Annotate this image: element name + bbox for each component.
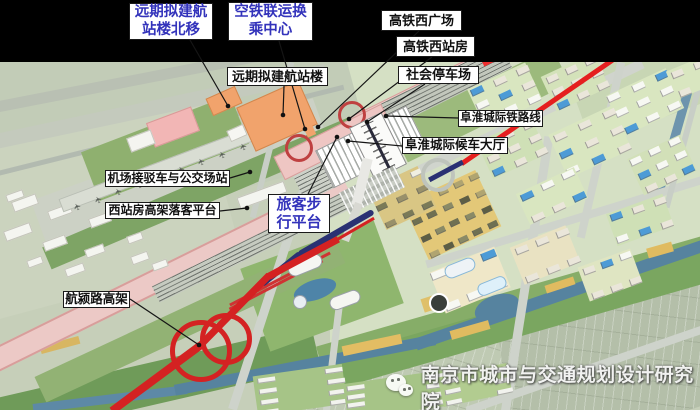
annotation-hangying-road-viaduct: 航颍路高架 bbox=[63, 291, 130, 308]
annotation-passenger-walking-platform: 旅客步行平台 bbox=[268, 194, 330, 233]
annotation-fuhuai-intercity-rail-line: 阜淮城际铁路线 bbox=[458, 110, 543, 127]
watermark: 南京市城市与交通规划设计研究院 bbox=[386, 360, 700, 410]
annotation-hsr-west-station-building: 高铁西站房 bbox=[396, 36, 475, 57]
annotation-terminal-north-shift: 远期拟建航站楼北移 bbox=[129, 3, 213, 40]
annotation-fuhuai-intercity-waiting-hall: 阜淮城际候车大厅 bbox=[402, 137, 508, 154]
aerial-rendering: ✈✈✈✈✈✈✈✈✈✈✈✈ bbox=[0, 62, 700, 410]
watermark-text: 南京市城市与交通规划设计研究院 bbox=[421, 360, 700, 410]
wechat-icon bbox=[386, 373, 415, 401]
annotation-air-rail-transfer-center: 空铁联运换乘中心 bbox=[228, 2, 313, 41]
annotation-west-building-elevated-dropoff: 西站房高架落客平台 bbox=[105, 202, 220, 219]
annotation-public-parking: 社会停车场 bbox=[398, 66, 479, 84]
annotation-airport-shuttle-bus-terminal: 机场接驳车与公交场站 bbox=[105, 170, 230, 187]
annotation-future-terminal: 远期拟建航站楼 bbox=[227, 67, 328, 86]
annotation-hsr-west-plaza: 高铁西广场 bbox=[381, 10, 462, 31]
planning-rendering-screenshot: ✈✈✈✈✈✈✈✈✈✈✈✈ 远期拟建航站楼北移空铁联运换乘中心高铁西广场高铁西站房… bbox=[0, 0, 700, 410]
